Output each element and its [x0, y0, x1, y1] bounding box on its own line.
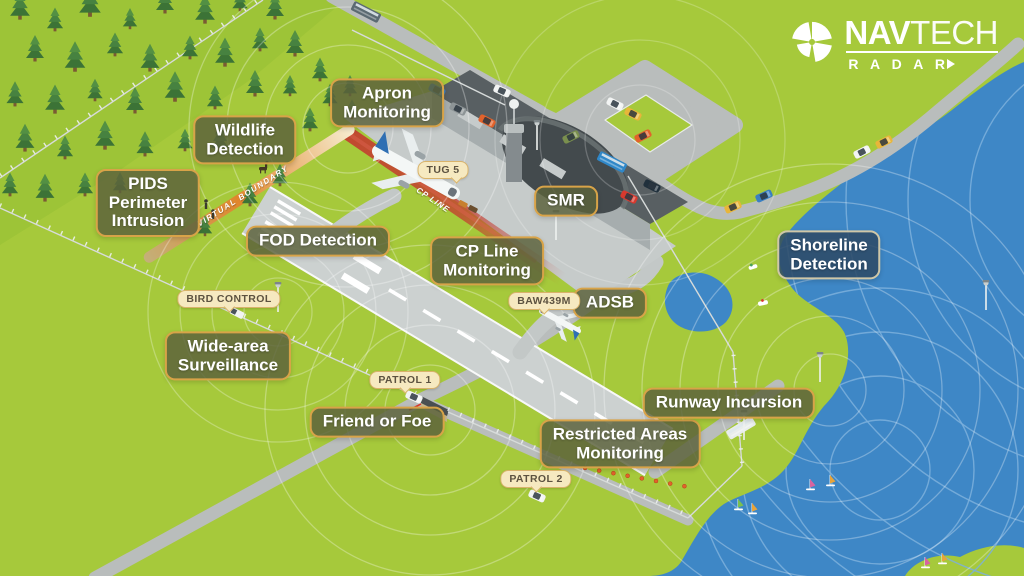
- callout-wildlife-detection: Wildlife Detection: [193, 115, 296, 164]
- radar-fan-icon: [789, 18, 835, 66]
- callout-runway-incursion: Runway Incursion: [643, 388, 815, 419]
- brand-name: NAVTECH: [844, 18, 998, 48]
- callout-restricted-areas-monitoring: Restricted Areas Monitoring: [540, 419, 701, 468]
- brand-tagline: RADAR: [844, 56, 998, 72]
- callout-friend-or-foe: Friend or Foe: [310, 407, 445, 438]
- brand-rule: [846, 51, 998, 53]
- callout-adsb: ADSB: [573, 288, 647, 319]
- tag-patrol-2: PATROL 2: [500, 470, 571, 488]
- tag-patrol-1: PATROL 1: [369, 371, 440, 389]
- tag-tug-5: TUG 5: [418, 161, 469, 179]
- tag-bird-control: BIRD CONTROL: [177, 290, 280, 308]
- callout-apron-monitoring: Apron Monitoring: [330, 78, 444, 127]
- callout-wide-area-surveillance: Wide-area Surveillance: [165, 331, 291, 380]
- tag-aircraft-callsign: BAW439M: [508, 292, 580, 310]
- callout-smr: SMR: [534, 186, 598, 217]
- callout-cp-line-monitoring: CP Line Monitoring: [430, 236, 544, 285]
- brand-logo: NAVTECH RADAR: [789, 18, 998, 72]
- airport-illustration: [0, 0, 1024, 576]
- callout-shoreline-detection: Shoreline Detection: [777, 230, 880, 279]
- navtech-airport-infographic: VIRTUAL BOUNDARY CP LINE Apron Monitorin…: [0, 0, 1024, 576]
- arrow-icon: [947, 59, 955, 69]
- callout-fod-detection: FOD Detection: [246, 226, 390, 257]
- callout-pids-perimeter-intrusion: PIDS Perimeter Intrusion: [96, 169, 200, 237]
